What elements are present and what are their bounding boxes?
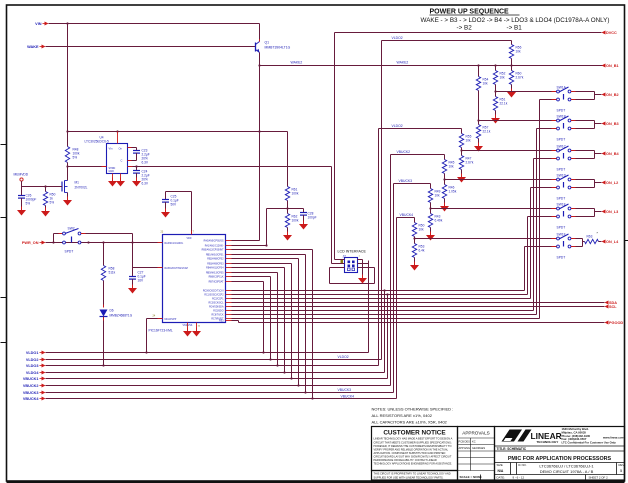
svg-text:SUPPLIED FOR USE WITH LINEAR T: SUPPLIED FOR USE WITH LINEAR TECHNOLOGY … xyxy=(374,476,444,480)
svg-text:SPDT: SPDT xyxy=(557,109,566,113)
svg-text:6.3V: 6.3V xyxy=(142,161,149,165)
svg-text:VBUCK3: VBUCK3 xyxy=(399,179,413,183)
svg-text:ON_L4: ON_L4 xyxy=(606,240,619,244)
svg-text:SPDT: SPDT xyxy=(557,226,566,230)
svg-text:DEMO CIRCUIT 1978A - A / B: DEMO CIRCUIT 1978A - A / B xyxy=(540,469,594,474)
svg-text:RB6/ICSPCLK: RB6/ICSPCLK xyxy=(209,277,224,279)
svg-text:16V: 16V xyxy=(138,279,145,283)
svg-text:ON_L3: ON_L3 xyxy=(606,210,618,214)
svg-text:6.4k: 6.4k xyxy=(419,249,425,253)
svg-text:SW1A: SW1A xyxy=(557,86,567,90)
svg-text:RC2/CCP1: RC2/CCP1 xyxy=(212,299,224,301)
svg-text:100k: 100k xyxy=(292,192,299,196)
svg-text:RB5/AN13/CPS5: RB5/AN13/CPS5 xyxy=(206,272,224,275)
svg-text:10k: 10k xyxy=(483,82,489,86)
svg-text:PERFORMANCE OR RELIABILITY. C: PERFORMANCE OR RELIABILITY. CONTACT LINE… xyxy=(374,458,437,462)
svg-text:APP ENG: APP ENG xyxy=(459,446,470,450)
svg-text:CIRCUIT THAT MEETS CUSTOMER-SU: CIRCUIT THAT MEETS CUSTOMER-SUPPLIED SPE… xyxy=(374,440,452,444)
svg-text:LTC3676EUJ / LTC3676EUJ-1: LTC3676EUJ / LTC3676EUJ-1 xyxy=(539,464,594,469)
svg-text:10k: 10k xyxy=(500,76,506,80)
svg-text:VDD: VDD xyxy=(187,238,192,240)
svg-text:TITLE: SCHEMATIC: TITLE: SCHEMATIC xyxy=(497,447,527,451)
svg-text:WAKE2: WAKE2 xyxy=(291,61,303,65)
svg-text:GEORGES: GEORGES xyxy=(472,446,485,450)
svg-text:MCLR/VPP: MCLR/VPP xyxy=(165,319,177,321)
svg-text:SHEET 2 OF 2: SHEET 2 OF 2 xyxy=(589,476,609,480)
svg-text:SPDT: SPDT xyxy=(557,256,566,260)
svg-text:MMBT3904LT1G: MMBT3904LT1G xyxy=(265,46,291,50)
svg-text:PWR_ON: PWR_ON xyxy=(22,241,39,245)
svg-text:LINEAR TECHNOLOGY HAS MADE A B: LINEAR TECHNOLOGY HAS MADE A BEST EFFORT… xyxy=(374,437,453,441)
svg-text:MMBZ4688T1G: MMBZ4688T1G xyxy=(110,314,133,318)
svg-text:LTC Confidential-For Customer: LTC Confidential-For Customer Use Only xyxy=(562,441,617,445)
svg-text:IC NO.: IC NO. xyxy=(518,463,527,467)
svg-text:PCB DES: PCB DES xyxy=(459,439,471,443)
svg-text:100pF: 100pF xyxy=(308,216,317,220)
svg-text:VLDO3: VLDO3 xyxy=(26,364,39,368)
svg-text:2.67k: 2.67k xyxy=(466,161,474,165)
svg-text:VBUCK4: VBUCK4 xyxy=(23,397,40,401)
svg-text:VBUCK4: VBUCK4 xyxy=(341,395,355,399)
svg-text:10k: 10k xyxy=(466,139,472,143)
svg-text:VBUCK4: VBUCK4 xyxy=(400,213,414,217)
svg-text:APPLICATION. COMPONENT SUBSTIT: APPLICATION. COMPONENT SUBSTITUTION AND … xyxy=(374,451,446,455)
svg-text:10k: 10k xyxy=(419,228,425,232)
svg-text:ON_B1: ON_B1 xyxy=(606,64,619,68)
svg-text:VLDO2: VLDO2 xyxy=(392,124,403,128)
svg-text:Q1: Q1 xyxy=(265,41,270,45)
svg-text:LTC3025EDC6-5: LTC3025EDC6-5 xyxy=(85,140,109,144)
svg-text:10k: 10k xyxy=(516,50,522,54)
svg-text:VSS VSS: VSS VSS xyxy=(183,325,193,327)
svg-text:RE3: RE3 xyxy=(219,321,224,323)
svg-text:22.1k: 22.1k xyxy=(483,130,491,134)
svg-text:VIN: VIN xyxy=(35,22,42,26)
svg-text:GND: GND xyxy=(109,170,115,173)
svg-text:5%: 5% xyxy=(26,202,31,206)
svg-text:VERIFY PROPER AND RELIABLE OPE: VERIFY PROPER AND RELIABLE OPERATION IN … xyxy=(374,447,449,451)
svg-text:511k: 511k xyxy=(109,271,116,275)
svg-text:SW1F: SW1F xyxy=(557,233,566,237)
svg-text:-> B2: -> B2 xyxy=(457,25,473,32)
svg-text:C: C xyxy=(121,159,123,163)
svg-text:VBUCK3: VBUCK3 xyxy=(338,388,352,392)
svg-text:RC1/SOSCI/CCP2: RC1/SOSCI/CCP2 xyxy=(204,295,224,297)
svg-text:SW1B: SW1B xyxy=(557,115,567,119)
svg-text:M1: M1 xyxy=(75,181,80,185)
svg-text:THIS CIRCUIT IS PROPRIETARY TO: THIS CIRCUIT IS PROPRIETARY TO LINEAR TE… xyxy=(374,472,451,476)
svg-text:REV.: REV. xyxy=(619,463,625,467)
svg-text:VIn: VIn xyxy=(109,147,113,151)
svg-text:VBUCK2: VBUCK2 xyxy=(23,384,39,388)
svg-text:10k: 10k xyxy=(449,165,455,169)
svg-text:RB3/AN9/CPS3: RB3/AN9/CPS3 xyxy=(207,263,224,266)
svg-text:LCD INTERFACE: LCD INTERFACE xyxy=(338,250,367,254)
svg-text:SPDT: SPDT xyxy=(65,250,74,254)
svg-text:www.linear.com: www.linear.com xyxy=(602,436,625,440)
svg-text:RB2/AN8/CPS2: RB2/AN8/CPS2 xyxy=(207,258,224,261)
svg-text:RA0/AN0/CPS0/SS: RA0/AN0/CPS0/SS xyxy=(204,240,224,243)
svg-text:WAKE - > B3 - > LDO2 -> B4 ->: WAKE - > B3 - > LDO2 -> B4 -> LDO3 & LDO… xyxy=(421,17,610,24)
svg-text:-> B1: -> B1 xyxy=(507,25,523,32)
svg-text:6.3V: 6.3V xyxy=(142,182,149,186)
svg-text:VBUCK3: VBUCK3 xyxy=(23,391,39,395)
svg-text:ON_L2: ON_L2 xyxy=(606,181,618,185)
svg-text:VBUCK1: VBUCK1 xyxy=(23,377,39,381)
svg-text:SPDT: SPDT xyxy=(557,197,566,201)
svg-text:1.05k: 1.05k xyxy=(449,190,457,194)
svg-text:9 - 6 - 12: 9 - 6 - 12 xyxy=(513,476,525,480)
svg-text:PGOOD: PGOOD xyxy=(609,321,623,325)
svg-text:VLDO2: VLDO2 xyxy=(26,358,39,362)
svg-text:RA1/AN1/C12IN0-: RA1/AN1/C12IN0- xyxy=(205,245,224,248)
svg-text:HOWEVER, IT REMAINS THE CUSTOM: HOWEVER, IT REMAINS THE CUSTOMER'S RESPO… xyxy=(374,444,452,448)
svg-text:22.1k: 22.1k xyxy=(500,102,508,106)
svg-text:SIZE: SIZE xyxy=(497,463,503,467)
svg-text:DVCC: DVCC xyxy=(606,31,617,35)
svg-text:ON_B4: ON_B4 xyxy=(606,152,620,156)
svg-text:VLDO4: VLDO4 xyxy=(26,371,40,375)
svg-text:RB7/ICSPDAT: RB7/ICSPDAT xyxy=(209,281,224,284)
svg-text:ALL RESISTORS ARE ±1%, 0402: ALL RESISTORS ARE ±1%, 0402 xyxy=(372,413,433,418)
svg-text:2N7002L: 2N7002L xyxy=(75,186,88,190)
svg-text:PIC16F723-I/ML: PIC16F723-I/ML xyxy=(149,329,173,333)
svg-text:WAKE: WAKE xyxy=(27,45,39,49)
svg-text:VLDO2: VLDO2 xyxy=(392,36,403,40)
svg-text:10k: 10k xyxy=(435,194,441,198)
svg-text:PMIC FOR APPLICATION PROCESSOR: PMIC FOR APPLICATION PROCESSORS xyxy=(508,456,612,462)
svg-text:100k: 100k xyxy=(292,219,299,223)
svg-text:SPDT: SPDT xyxy=(557,138,566,142)
svg-text:D6: D6 xyxy=(110,309,114,313)
svg-text:CIRCUIT BOARD LAYOUT MAY SIGNI: CIRCUIT BOARD LAYOUT MAY SIGNIFICANTLY A… xyxy=(374,454,452,458)
svg-text:RA3/SC1/C12IN3-: RA3/SC1/C12IN3- xyxy=(165,242,184,245)
svg-text:SW1D: SW1D xyxy=(557,174,567,178)
svg-text:TECHNOLOGY: TECHNOLOGY xyxy=(537,440,560,444)
svg-text:VBUCK2: VBUCK2 xyxy=(397,150,411,154)
svg-text:6.49k: 6.49k xyxy=(435,219,443,223)
svg-text:RC3/SCK/SCL: RC3/SCK/SCL xyxy=(208,303,224,305)
svg-text:RC0/SOSCO/T1CKI: RC0/SOSCO/T1CKI xyxy=(203,291,224,293)
svg-text:ON_B2: ON_B2 xyxy=(606,93,619,97)
svg-text:N/A: N/A xyxy=(498,469,504,473)
svg-text:R63: R63 xyxy=(587,235,593,239)
svg-text:RC4/SDI/SDA: RC4/SDI/SDA xyxy=(209,306,224,309)
svg-text:ALL CAPACITORS ARE ±10%, X5R,: ALL CAPACITORS ARE ±10%, X5R, 0402 xyxy=(372,420,448,425)
svg-text:VLDO1: VLDO1 xyxy=(26,351,39,355)
svg-text:RB1/AN10/CPS1: RB1/AN10/CPS1 xyxy=(206,254,224,257)
svg-text:WAKE2: WAKE2 xyxy=(397,61,409,65)
svg-text:2.67k: 2.67k xyxy=(516,76,524,80)
svg-text:MEMVDD: MEMVDD xyxy=(14,173,29,177)
svg-text:5%: 5% xyxy=(50,201,55,205)
svg-text:SW1E: SW1E xyxy=(557,203,567,207)
svg-text:KC: KC xyxy=(472,439,476,443)
svg-text:CUSTOMER NOTICE: CUSTOMER NOTICE xyxy=(383,430,446,437)
svg-text:POWER UP SEQUENCE: POWER UP SEQUENCE xyxy=(430,9,510,16)
svg-text:5%: 5% xyxy=(73,156,78,160)
svg-text:SCALE = NONE: SCALE = NONE xyxy=(460,475,482,479)
svg-text:APPROVALS: APPROVALS xyxy=(462,431,490,436)
svg-text:TECHNOLOGY APPLICATIONS ENGINE: TECHNOLOGY APPLICATIONS ENGINEERING FOR … xyxy=(374,462,453,466)
svg-text:NOTES: UNLESS OTHERWISE SPECIF: NOTES: UNLESS OTHERWISE SPECIFIED : xyxy=(372,407,454,412)
svg-text:RA5/C2OUT/SS/VCAP: RA5/C2OUT/SS/VCAP xyxy=(165,267,189,270)
svg-text:VLDO2: VLDO2 xyxy=(338,355,349,359)
svg-text:RC6/TX/CK: RC6/TX/CK xyxy=(212,315,224,317)
svg-text:SCL: SCL xyxy=(609,305,617,309)
svg-text:RC5/SDO: RC5/SDO xyxy=(213,311,223,313)
svg-text:ON_B3: ON_B3 xyxy=(606,122,619,126)
svg-text:SPDT: SPDT xyxy=(557,168,566,172)
svg-text:DATE:: DATE: xyxy=(497,476,505,480)
svg-text:SW1C: SW1C xyxy=(557,145,567,149)
svg-text:On: On xyxy=(119,147,123,151)
svg-text:RB0/AN12/CPS0/INT: RB0/AN12/CPS0/INT xyxy=(202,249,224,252)
svg-text:50V: 50V xyxy=(171,203,178,207)
svg-text:SW2: SW2 xyxy=(68,227,75,231)
svg-text:RB4/AN11/CPS4: RB4/AN11/CPS4 xyxy=(206,267,224,270)
